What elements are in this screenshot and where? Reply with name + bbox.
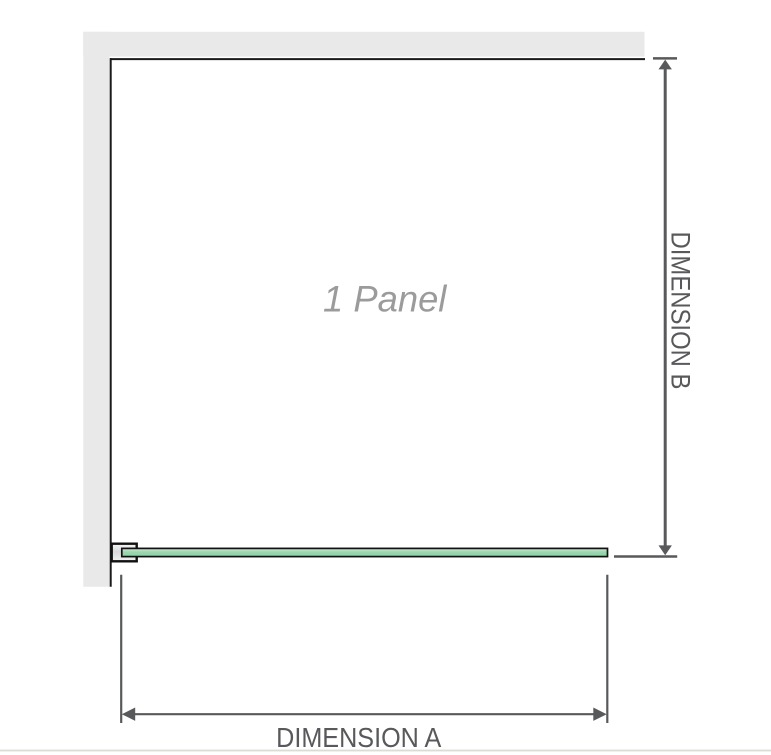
svg-text:DIMENSION A: DIMENSION A — [276, 722, 441, 754]
svg-text:1 Panel: 1 Panel — [323, 278, 448, 320]
svg-text:DIMENSION B: DIMENSION B — [665, 232, 695, 390]
